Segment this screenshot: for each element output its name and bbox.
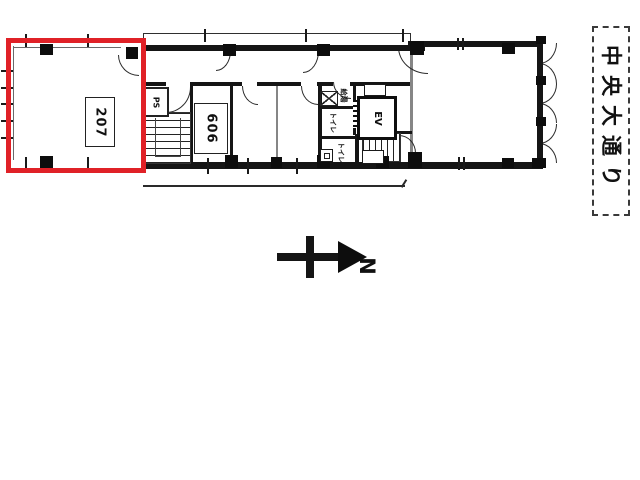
pipe-space-label: PS [152, 96, 161, 108]
window-tick [204, 29, 206, 42]
wall [190, 82, 242, 86]
pipe-space-box: PS [143, 87, 169, 117]
wall [318, 136, 356, 139]
column [408, 152, 422, 168]
wall [408, 41, 543, 47]
wall [257, 82, 301, 86]
toilet-fixture [320, 149, 333, 162]
unit-606-label-box: 606 [194, 103, 228, 154]
mullion-block [536, 158, 546, 168]
stair-landing [362, 150, 384, 164]
window-tick [462, 38, 464, 50]
column [223, 44, 236, 56]
mullion-block [536, 76, 546, 85]
window-tick [305, 29, 307, 42]
wall [143, 82, 166, 86]
street-name-label: 中央大通り [597, 30, 627, 210]
stair-direction-line [155, 118, 181, 157]
compass-north-label: N [355, 257, 379, 275]
mullion-block [536, 36, 546, 44]
street-band: 中央大通り [592, 26, 630, 216]
toilet-b-label-box: トイレ [334, 140, 347, 165]
column [225, 155, 238, 168]
window-tick [207, 158, 209, 174]
floor-plan-canvas: EV PS 給湯 トイレ トイレ 606 207 [0, 0, 640, 480]
wall [318, 106, 356, 109]
wall [276, 84, 278, 164]
column [502, 43, 515, 54]
column [502, 158, 514, 168]
window-tick [247, 158, 249, 174]
elevator-label: EV [371, 111, 382, 126]
duct-box [364, 84, 386, 96]
window-tick [402, 29, 404, 42]
kitchenette-label-box: 給湯 [336, 86, 350, 104]
ground-line [143, 185, 405, 187]
mullion-block [536, 117, 546, 126]
window-tick [463, 157, 465, 170]
column [317, 44, 330, 56]
compass-cross-horizontal [277, 253, 341, 261]
kitchenette-label: 給湯 [340, 88, 347, 102]
toilet-fixture-inner [324, 153, 330, 159]
window-tick [457, 38, 459, 50]
door-arc [399, 135, 416, 153]
unit-207-highlight [6, 38, 146, 173]
door-arc [166, 87, 191, 113]
toilet-a-label: トイレ [329, 112, 336, 133]
toilet-b-label: トイレ [337, 142, 344, 163]
wall [537, 41, 543, 169]
window-tick [296, 158, 298, 174]
window-tick [458, 157, 460, 170]
column [271, 157, 282, 168]
door-arc [242, 86, 258, 105]
toilet-a-label-box: トイレ [326, 110, 339, 135]
column [410, 41, 424, 55]
door-arc [301, 86, 318, 105]
elevator-door-hatch [353, 100, 357, 128]
elevator-shaft: EV [357, 96, 397, 140]
unit-606-label: 606 [203, 113, 218, 143]
wall [141, 45, 425, 51]
